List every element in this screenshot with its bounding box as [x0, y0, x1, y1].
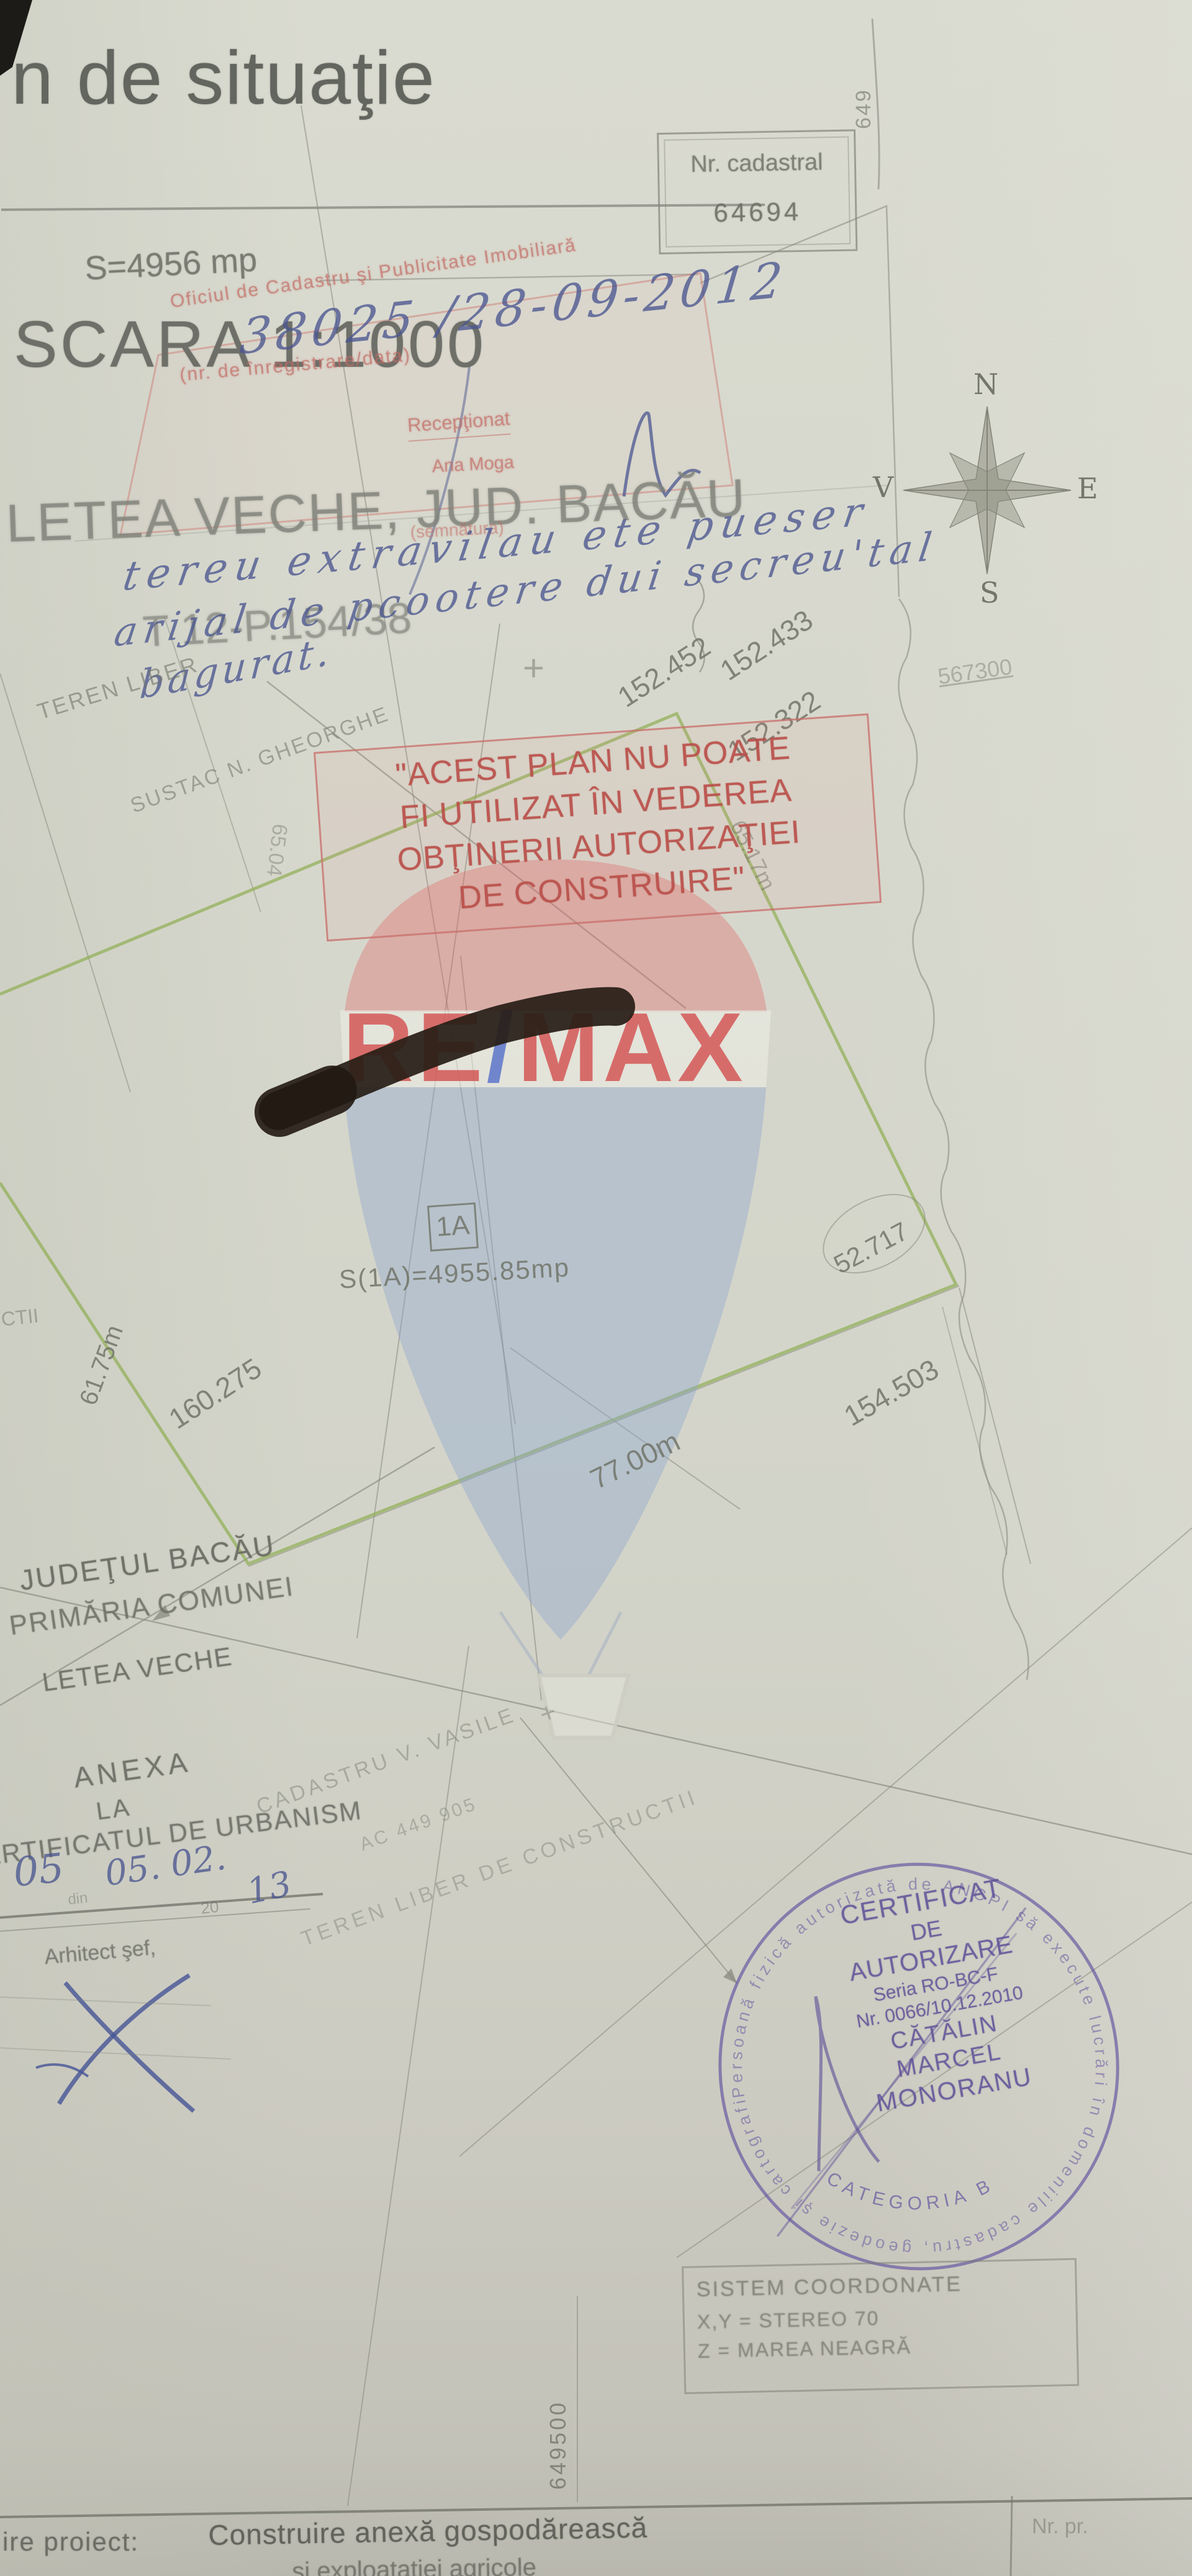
project-name-line2: şi exploataţiei agricole — [292, 2554, 536, 2576]
coord-box-z: Z = MAREA NEAGRĂ — [697, 2332, 1077, 2363]
arrowhead-icon — [723, 1968, 737, 1983]
svg-text:CATEGORIA B: CATEGORIA B — [820, 2140, 1000, 2232]
project-number-label: Nr. pr. — [1032, 2515, 1088, 2539]
plus-mark-icon: + — [523, 647, 544, 689]
din-label: din — [67, 1890, 89, 1909]
round-stamp-text: CERTIFICAT DE AUTORIZARE Seria RO-BC-F N… — [802, 1865, 1073, 2125]
cadastral-number-label: Nr. cadastral — [659, 148, 855, 178]
cadastral-number-value: 64694 — [660, 195, 856, 228]
received-by: Ana Moga — [431, 452, 515, 477]
year-prefix-label: 20 — [200, 1897, 220, 1918]
coordinate-system-box: SISTEM COORDONATE X,Y = STEREO 70 Z = MA… — [682, 2258, 1079, 2394]
restriction-stamp-box: "ACEST PLAN NU POATE FI UTILIZAT ÎN VEDE… — [314, 713, 882, 941]
form-line — [0, 2048, 231, 2059]
edge-text-fragment: CTII — [0, 1304, 40, 1331]
survey-line-16 — [942, 1307, 1007, 1555]
compass-north-label: N — [973, 367, 998, 401]
certificate-number-handwritten: 05 — [11, 1845, 66, 1896]
compass-south-label: S — [980, 576, 1000, 609]
remax-balloon-watermark: RE/MAX — [340, 859, 771, 1738]
parcel-id-label: 1A — [430, 1209, 476, 1244]
form-line — [0, 1997, 211, 2006]
survey-line-15 — [959, 1288, 1031, 1564]
annex-to-label: LA — [94, 1793, 133, 1826]
architect-signature — [36, 1975, 194, 2111]
survey-line-6 — [0, 673, 130, 1092]
squiggle-line-large — [899, 599, 1029, 1680]
certificate-underline-2 — [0, 1909, 310, 1931]
page-title: n de situaţie — [11, 34, 436, 121]
title-underline — [1, 205, 765, 210]
scanned-site-plan: RE/MAX Persoană fizică autorizată de ANC… — [0, 0, 1192, 2576]
project-label: ire proiect: — [2, 2527, 139, 2557]
footer-divider — [1011, 2496, 1012, 2576]
compass-west-label: V — [873, 470, 893, 504]
grid-coordinate-left: 649500 — [545, 2400, 571, 2490]
grid-coordinate-top: 649 — [852, 88, 876, 129]
parcel-id-box: 1A — [427, 1203, 479, 1252]
compass-east-label: E — [1077, 472, 1098, 505]
coord-box-xy: X,Y = STEREO 70 — [697, 2303, 1077, 2334]
plan-linework: RE/MAX Persoană fizică autorizată de ANC… — [0, 0, 1192, 2576]
coord-box-title: SISTEM COORDONATE — [696, 2270, 1075, 2302]
